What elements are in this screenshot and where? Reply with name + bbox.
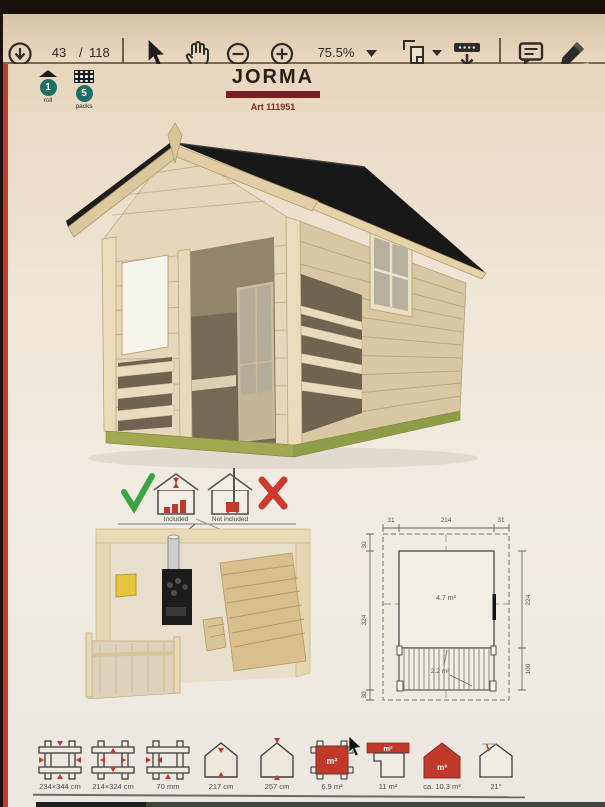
- badge-text: m²: [327, 756, 338, 766]
- cabin-product-photo: [58, 113, 545, 470]
- interior-cutaway-view: [58, 515, 344, 709]
- zoom-level-value[interactable]: 75.5%: [310, 45, 362, 60]
- next-section-edge-dark: [36, 802, 146, 807]
- top-dim-line: [383, 524, 509, 532]
- zoom-in-icon[interactable]: [270, 42, 294, 66]
- select-cursor-icon[interactable]: [147, 40, 167, 67]
- roll-count-badge: 1: [40, 79, 57, 96]
- chimney-pipe: [168, 537, 179, 573]
- corner-post-left: [102, 237, 116, 433]
- roof-area-icon: m²: [366, 740, 410, 780]
- mouse-cursor: [348, 736, 364, 758]
- porch-post-mark: [491, 646, 496, 655]
- porch-railing: [92, 653, 174, 655]
- porch-post-mark: [397, 646, 402, 655]
- roof-pitch-icon: [474, 740, 518, 780]
- door-mark: [493, 594, 497, 620]
- pdf-toolbar: 43 / 118 75.5%: [0, 14, 605, 64]
- cross-icon: [262, 480, 284, 506]
- wall-thickness-icon: [146, 740, 190, 780]
- porch-post-mark: [490, 681, 496, 691]
- porch-post-mark: [397, 681, 403, 691]
- dim-label: 30: [361, 541, 368, 549]
- title-block: JORMA Art 111951: [173, 64, 373, 112]
- included-house-icon: [154, 474, 198, 514]
- dim-label: 31: [497, 517, 505, 524]
- dim-label: 31: [387, 517, 395, 524]
- badge-text: m³: [437, 763, 447, 772]
- area-main-label: 4.7 m²: [436, 595, 457, 602]
- dim-label: 324: [361, 614, 368, 625]
- dim-label: 30: [361, 691, 368, 699]
- interior-height-icon: [199, 740, 243, 780]
- dim-label: 214: [441, 517, 452, 524]
- chimney-top: [168, 535, 179, 539]
- side-railing-gap: [298, 273, 362, 435]
- porch-post-left: [86, 633, 92, 697]
- front-railing-slats: [116, 361, 174, 421]
- window-top-bar: [0, 0, 605, 14]
- ridge-height-icon: [255, 738, 299, 780]
- roll-label: roll: [30, 97, 66, 104]
- page-title: JORMA: [173, 64, 373, 89]
- stove-door: [166, 607, 186, 616]
- page-count-total: 118: [89, 45, 110, 60]
- pack-count-badge: 5: [76, 85, 93, 102]
- page-count-divider: /: [79, 45, 83, 60]
- not-included-house-icon: [208, 468, 252, 514]
- page-fit-caret-icon[interactable]: [432, 50, 442, 56]
- zoom-out-icon[interactable]: [226, 42, 250, 66]
- zoom-dropdown-caret-icon[interactable]: [366, 50, 377, 57]
- pallet-grid-icon: [74, 70, 94, 83]
- roof-glyph-icon: [39, 70, 57, 77]
- front-window-opening: [122, 255, 168, 355]
- back-wall: [96, 529, 310, 543]
- dim-label: 100: [525, 663, 532, 674]
- porch-post: [178, 249, 192, 441]
- porch-post-right: [174, 637, 180, 693]
- app-red-stripe: [3, 64, 8, 807]
- outer-dimensions-icon: [38, 740, 82, 780]
- area-porch-label: 2.2 m²: [431, 668, 450, 675]
- dim-label: 224: [525, 594, 532, 605]
- corner-post-right: [286, 217, 302, 447]
- page-number-input[interactable]: 43: [42, 45, 76, 60]
- spec-label: 21°: [456, 782, 536, 791]
- door-lower-panel: [240, 391, 274, 441]
- sauna-window: [116, 574, 136, 597]
- porch-floor: [88, 641, 180, 699]
- title-underline-bar: [226, 91, 320, 98]
- sauna-stove: [162, 569, 192, 625]
- volume-icon: m³: [420, 740, 464, 780]
- inner-dimensions-icon: [91, 740, 135, 780]
- art-number: Art 111951: [173, 102, 373, 112]
- check-icon: [124, 476, 152, 508]
- badge-text: m²: [383, 744, 393, 753]
- pack-label: packs: [66, 103, 102, 110]
- left-wall: [96, 543, 110, 645]
- floor-plan-dimensions: 31 214 31 30 324 30 224 100 4.7 m² 2.2 m…: [360, 500, 545, 715]
